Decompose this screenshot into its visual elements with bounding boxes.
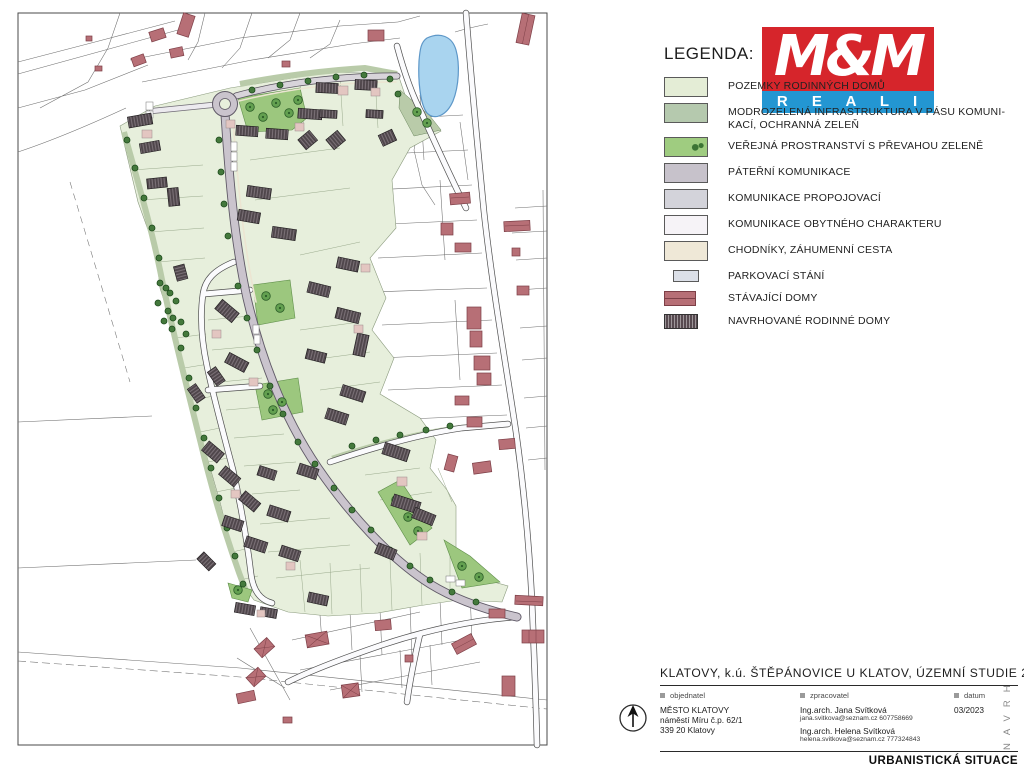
legend-item-chodniky: CHODNÍKY, ZÁHUMENNÍ CESTA	[664, 241, 1022, 261]
legend-swatch-verejna	[664, 137, 708, 157]
legend-swatch-obytneho	[664, 215, 708, 235]
pond	[419, 35, 459, 116]
legend-item-stavajici: STÁVAJÍCÍ DOMY	[664, 289, 1022, 306]
designer-section: zpracovatel Ing.arch. Jana Svítková jana…	[800, 691, 954, 747]
legend-item-verejna: VEŘEJNÁ PROSTRANSTVÍ S PŘEVAHOU ZELENĚ	[664, 137, 1022, 157]
legend: LEGENDA: POZEMKY RODINNÝCH DOMŮ MODROZEL…	[664, 44, 1022, 335]
client-label: objednatel	[660, 691, 800, 700]
legend-item-paterni: PÁTEŘNÍ KOMUNIKACE	[664, 163, 1022, 183]
site-plan-map	[0, 0, 660, 764]
client-address-2: 339 20 Klatovy	[660, 725, 800, 735]
legend-swatch-parkovaci	[673, 270, 699, 282]
legend-swatch-stavajici	[664, 291, 696, 306]
north-arrow-icon	[612, 697, 654, 739]
legend-label: PARKOVACÍ STÁNÍ	[728, 267, 825, 283]
title-block: KLATOVY, k.ú. ŠTĚPÁNOVICE U KLATOV, ÚZEM…	[660, 666, 1018, 767]
roundabout	[213, 92, 238, 117]
designer-name-2: Ing.arch. Helena Svítková	[800, 726, 954, 736]
legend-swatch-pozemky	[664, 77, 708, 97]
client-address-1: náměstí Míru č.p. 62/1	[660, 715, 800, 725]
urban-study-sheet: { "legend": { "title": "LEGENDA:", "item…	[0, 0, 1024, 764]
urbanisticka-situace-label: URBANISTICKÁ SITUACE	[660, 751, 1018, 767]
navrh-vertical-label: NAVRH	[1002, 664, 1013, 750]
project-title: KLATOVY, k.ú. ŠTĚPÁNOVICE U KLATOV, ÚZEM…	[660, 666, 1018, 686]
square-bullet-icon	[800, 693, 805, 698]
legend-swatch-chodniky	[664, 241, 708, 261]
legend-swatch-navrhovane	[664, 314, 698, 329]
legend-label: POZEMKY RODINNÝCH DOMŮ	[728, 77, 885, 93]
designer-contact-2: helena.svitkova@seznam.cz 777324843	[800, 736, 954, 745]
legend-swatch-propojovaci	[664, 189, 708, 209]
legend-swatch-paterni	[664, 163, 708, 183]
title-block-columns: objednatel MĚSTO KLATOVY náměstí Míru č.…	[660, 686, 1018, 747]
legend-item-modrozelena: MODROZELENÁ INFRASTRUKTURA V PÁSU KOMUNI…	[664, 103, 1022, 131]
legend-label: KOMUNIKACE PROPOJOVACÍ	[728, 189, 881, 205]
square-bullet-icon	[660, 693, 665, 698]
legend-label: NAVRHOVANÉ RODINNÉ DOMY	[728, 312, 890, 328]
legend-swatch-modrozelena	[664, 103, 708, 123]
legend-label: VEŘEJNÁ PROSTRANSTVÍ S PŘEVAHOU ZELENĚ	[728, 137, 983, 153]
legend-item-navrhovane: NAVRHOVANÉ RODINNÉ DOMY	[664, 312, 1022, 329]
legend-label: KOMUNIKACE OBYTNÉHO CHARAKTERU	[728, 215, 942, 231]
legend-item-pozemky: POZEMKY RODINNÝCH DOMŮ	[664, 77, 1022, 97]
square-bullet-icon	[954, 693, 959, 698]
legend-title: LEGENDA:	[664, 44, 1022, 64]
designer-label: zpracovatel	[800, 691, 954, 700]
legend-label: PÁTEŘNÍ KOMUNIKACE	[728, 163, 851, 179]
client-name: MĚSTO KLATOVY	[660, 705, 800, 715]
legend-label: MODROZELENÁ INFRASTRUKTURA V PÁSU KOMUNI…	[728, 103, 1005, 131]
legend-item-obytneho: KOMUNIKACE OBYTNÉHO CHARAKTERU	[664, 215, 1022, 235]
designer-name-1: Ing.arch. Jana Svítková	[800, 705, 954, 715]
legend-item-parkovaci: PARKOVACÍ STÁNÍ	[664, 267, 1022, 283]
legend-item-propojovaci: KOMUNIKACE PROPOJOVACÍ	[664, 189, 1022, 209]
legend-label: CHODNÍKY, ZÁHUMENNÍ CESTA	[728, 241, 892, 257]
legend-label: STÁVAJÍCÍ DOMY	[728, 289, 818, 305]
client-section: objednatel MĚSTO KLATOVY náměstí Míru č.…	[660, 691, 800, 747]
designer-contact-1: jana.svitkova@seznam.cz 607758669	[800, 715, 954, 724]
